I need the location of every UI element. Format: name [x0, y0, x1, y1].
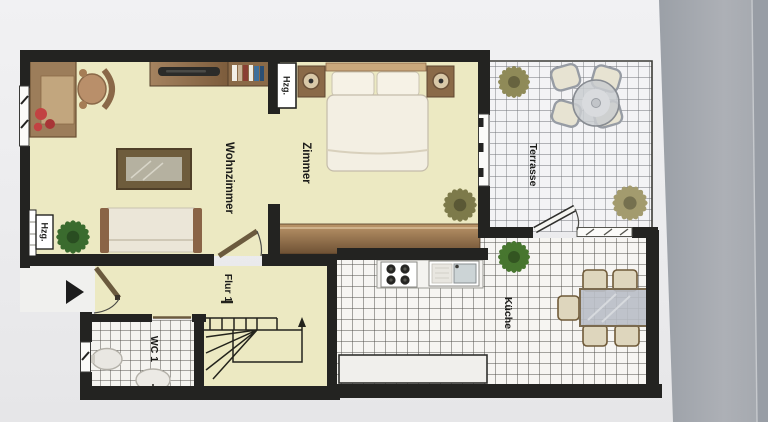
balcony-door-icon [479, 114, 490, 186]
label-flur: Flur 1 [222, 274, 234, 303]
label-zimmer: Zimmer [300, 142, 312, 184]
radiator-label-zimmer: Hzg. [277, 63, 296, 108]
label-terrasse: Terrasse [527, 143, 539, 186]
kitchen-window-icon [577, 228, 632, 237]
living-room-window-icon [20, 86, 30, 146]
tv-sideboard [150, 61, 228, 86]
coffee-table [117, 149, 191, 189]
faucet-icon [455, 265, 459, 269]
label-hzg-zimmer: Hzg. [282, 76, 292, 95]
wc-window-icon [81, 342, 91, 372]
nightstand-right [427, 66, 454, 97]
bookshelf [228, 61, 270, 86]
stove [381, 262, 417, 287]
label-wc: WC 1 [148, 336, 160, 362]
sink-unit [429, 261, 479, 286]
entry-niche [20, 266, 95, 312]
radiator-label-wohnzimmer: Hzg. [36, 215, 53, 249]
label-wohnzimmer: Wohnzimmer [223, 142, 235, 215]
washbasin [91, 349, 122, 370]
label-kueche: Küche [502, 297, 514, 329]
floor-plan-graphic: Wohnzimmer Zimmer Flur 1 WC 1 Küche Terr… [0, 0, 768, 422]
nightstand-left [298, 66, 325, 97]
label-hzg-wohnzimmer: Hzg. [40, 223, 50, 242]
kitchen-sideboard [339, 355, 487, 383]
bed [326, 63, 428, 171]
sofa [100, 208, 202, 253]
radiator-wohnzimmer [29, 210, 36, 256]
floor-plan-photo: Wohnzimmer Zimmer Flur 1 WC 1 Küche Terr… [0, 0, 768, 422]
tabletop-background [659, 0, 768, 422]
